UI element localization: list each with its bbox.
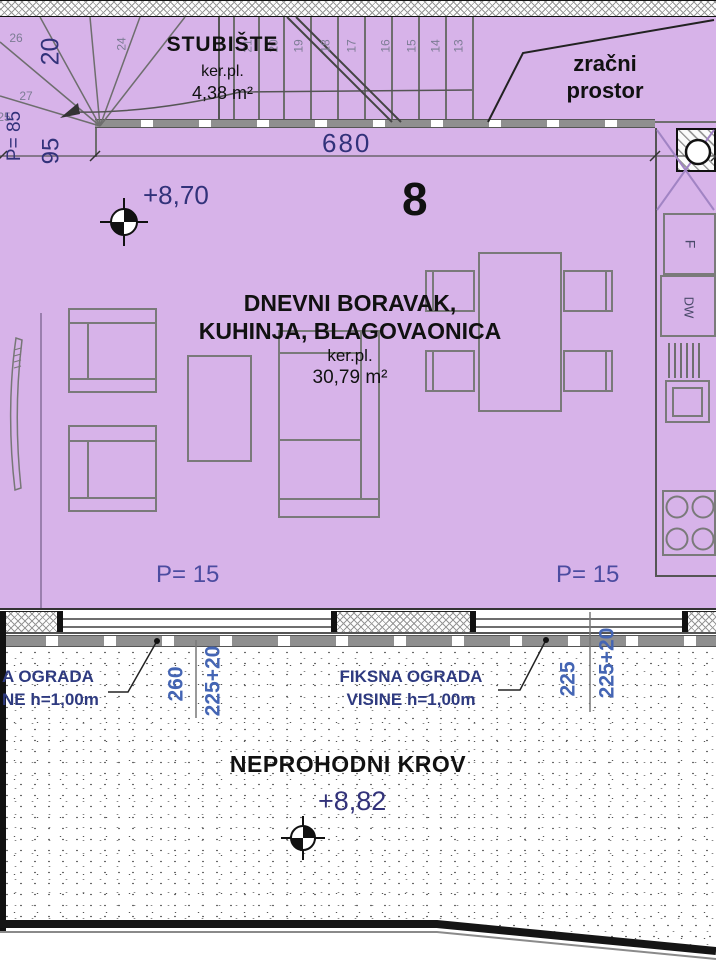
sink-basin — [672, 387, 703, 417]
dim-680: 680 — [322, 128, 371, 159]
sink-drain-line — [668, 343, 670, 378]
stair-tread — [364, 17, 366, 120]
sofa-line — [278, 498, 380, 500]
dim-95: 95 — [38, 126, 64, 176]
armchair-line — [87, 322, 89, 378]
window-glass-1b — [63, 626, 331, 628]
air-space-edge — [655, 121, 716, 123]
stair-room-divider — [95, 119, 655, 128]
top-wall — [0, 0, 716, 17]
sink-drain-line — [686, 343, 688, 378]
room-name: DNEVNI BORAVAK, KUHINJA, BLAGOVAONICA ke… — [145, 289, 555, 389]
roof-left-edge — [0, 611, 6, 932]
step-number: 15 — [404, 32, 420, 60]
step-number: 17 — [344, 32, 360, 60]
wall-pier-left — [0, 611, 57, 633]
armchair-2 — [68, 425, 157, 512]
tv-wall-line — [40, 313, 42, 608]
staircase-material: ker.pl. — [120, 63, 325, 81]
armchair-line — [68, 378, 157, 380]
air-space-label: zračniprostor — [540, 50, 670, 104]
window-frame-cap — [682, 611, 688, 633]
armchair-line — [68, 497, 157, 499]
step-number: 16 — [378, 32, 394, 60]
stove — [662, 490, 716, 556]
railing-label: FIKSNA OGRADAVISINE h=1,00m — [330, 665, 492, 711]
sofa-line — [278, 439, 360, 441]
armchair-line — [68, 440, 157, 442]
window-glass-2 — [476, 618, 682, 620]
parapet-85-label: P= 85 — [2, 94, 28, 178]
roof-area-slant — [437, 920, 716, 950]
shaft — [676, 128, 716, 172]
window-glass-2b — [476, 626, 682, 628]
stair-tread — [337, 17, 339, 120]
dim-225-20-right: 225+20 — [592, 614, 622, 712]
kitchen-counter-end — [655, 575, 716, 577]
step-number: 26 — [8, 24, 24, 52]
window-frame-cap — [470, 611, 476, 633]
fridge-label: F — [678, 230, 702, 258]
window-frame-cap — [57, 611, 63, 633]
parapet-15-right: P= 15 — [556, 561, 619, 589]
dim-20: 20 — [36, 26, 66, 76]
window-sill-line — [0, 608, 716, 610]
sink-drain-line — [680, 343, 682, 378]
armchair-line — [68, 322, 157, 324]
roof-label: NEPROHODNI KROV — [148, 751, 548, 778]
railing-label-left: A OGRADANE h=1,00m — [2, 665, 99, 711]
roof-level: +8,82 — [318, 786, 386, 817]
dim-225: 225 — [554, 646, 584, 712]
chair-back — [605, 270, 607, 312]
stair-tread — [445, 17, 447, 120]
wall-pier-middle — [337, 611, 470, 633]
staircase-area: 4,38 m² — [120, 83, 325, 104]
stair-tread — [472, 17, 474, 120]
dim-225-20-left: 225+20 — [198, 642, 228, 720]
armchair-line — [87, 440, 89, 497]
room-number: 8 — [402, 172, 428, 226]
window-glass-1 — [63, 618, 331, 620]
level-8-70: +8,70 — [143, 180, 209, 211]
wall-pier-right — [688, 611, 716, 633]
dishwasher-label: DW — [676, 290, 702, 324]
kitchen-counter-edge — [655, 128, 657, 575]
dim-260: 260 — [162, 650, 192, 718]
chair-back — [605, 350, 607, 392]
step-number: 14 — [428, 32, 444, 60]
staircase-title: STUBIŠTE — [120, 33, 325, 57]
floor-plan: 26 27 25 24 21 20 19 18 17 16 15 14 13 S… — [0, 0, 716, 960]
sink-drain-line — [692, 343, 694, 378]
parapet-15-left: P= 15 — [156, 561, 219, 589]
window-frame-cap — [331, 611, 337, 633]
step-number: 13 — [451, 32, 467, 60]
armchair-1 — [68, 308, 157, 393]
sink-drain-line — [674, 343, 676, 378]
sink-drain-line — [698, 343, 700, 378]
